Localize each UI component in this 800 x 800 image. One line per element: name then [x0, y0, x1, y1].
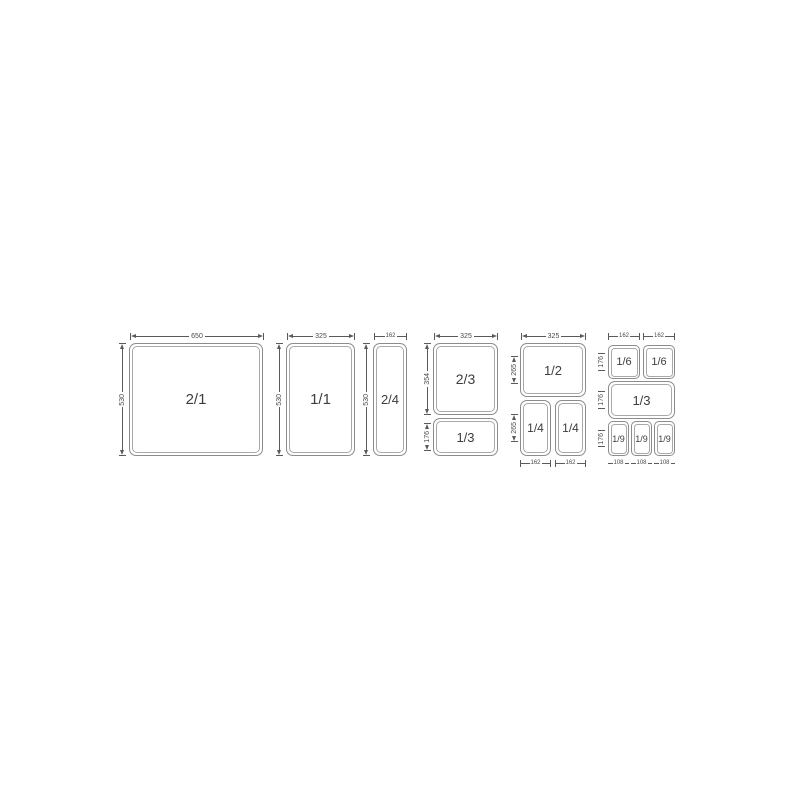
pan-1-4-left: 1/4	[520, 400, 551, 456]
dim-top-325-g4: 325	[434, 331, 498, 341]
pan-2-4: 2/4	[373, 343, 407, 456]
pan-1-3-wide: 1/3	[608, 381, 675, 419]
dim-top-162-g6-right: 162	[643, 331, 675, 341]
dim-left-530-g1: 530	[117, 343, 127, 456]
pan-label: 2/3	[456, 371, 475, 387]
pan-1-1: 1/1	[286, 343, 355, 456]
gastronorm-size-diagram: 650 530 2/1 325 530 1/1	[0, 0, 800, 800]
dim-tick	[354, 333, 355, 340]
pan-1-9-a: 1/9	[608, 421, 629, 456]
pan-1-2: 1/2	[520, 343, 586, 397]
pan-label: 1/4	[562, 421, 579, 435]
dim-tick	[598, 370, 605, 371]
dim-line	[644, 336, 653, 337]
dim-line	[521, 463, 530, 464]
dim-line	[122, 349, 123, 392]
dim-value: 650	[189, 333, 205, 340]
dim-tick	[585, 460, 586, 467]
dim-line	[427, 349, 428, 371]
dim-value: 530	[119, 392, 126, 408]
pan-label: 1/6	[651, 356, 666, 368]
dim-value: 108	[659, 460, 671, 466]
pan-1-6-right: 1/6	[643, 345, 675, 379]
pan-label: 1/9	[658, 434, 671, 444]
dim-line	[577, 463, 586, 464]
dim-value: 325	[313, 333, 329, 340]
dim-line	[293, 336, 313, 337]
dim-line	[527, 336, 546, 337]
dim-line	[279, 349, 280, 392]
dim-tick	[639, 333, 640, 340]
dim-left-176-g4: 176	[422, 418, 432, 456]
dim-value: 162	[565, 460, 577, 466]
dim-left-176-row3: 176	[596, 421, 606, 456]
dim-value: 530	[363, 392, 370, 408]
dim-line	[397, 336, 407, 337]
dim-top-650: 650	[130, 331, 264, 341]
dim-line	[375, 336, 385, 337]
dim-top-162-g6-left: 162	[608, 331, 640, 341]
dim-value: 176	[598, 431, 605, 447]
dim-line	[556, 463, 565, 464]
dim-value: 162	[530, 460, 542, 466]
dim-tick	[497, 333, 498, 340]
pan-label: 1/6	[616, 356, 631, 368]
dim-value: 176	[598, 392, 605, 408]
dim-line	[366, 349, 367, 392]
dim-value: 162	[653, 333, 665, 339]
dim-tick	[424, 450, 431, 451]
dim-left-265-top: 265	[509, 343, 519, 397]
dim-line	[671, 463, 676, 464]
pan-2-1: 2/1	[129, 343, 263, 456]
dim-value: 176	[424, 429, 431, 445]
dim-line	[136, 336, 189, 337]
dim-line	[279, 407, 280, 450]
dim-bottom-108-c: 108	[654, 458, 675, 468]
pan-1-3: 1/3	[433, 418, 498, 456]
pan-label: 2/4	[381, 392, 399, 407]
dim-top-325-g5: 325	[521, 331, 586, 341]
dim-left-354: 354	[422, 343, 432, 415]
dim-value: 354	[424, 371, 431, 387]
pan-1-9-b: 1/9	[631, 421, 652, 456]
dim-value: 176	[598, 354, 605, 370]
dim-line	[542, 463, 551, 464]
dim-line	[366, 407, 367, 450]
dim-line	[329, 336, 349, 337]
pan-label: 1/9	[635, 434, 648, 444]
pan-1-4-right: 1/4	[555, 400, 586, 456]
dim-value: 325	[546, 333, 562, 340]
dim-line	[122, 407, 123, 450]
dim-value: 108	[613, 460, 625, 466]
dim-tick	[363, 455, 370, 456]
dim-tick	[424, 414, 431, 415]
dim-tick	[276, 455, 283, 456]
dim-value: 265	[511, 362, 518, 378]
dim-left-530-g3: 530	[361, 343, 371, 456]
dim-value: 530	[276, 392, 283, 408]
dim-value: 162	[618, 333, 630, 339]
dim-value: 162	[385, 333, 397, 339]
pan-label: 1/4	[527, 421, 544, 435]
dim-bottom-108-a: 108	[608, 458, 629, 468]
dim-line	[205, 336, 258, 337]
dim-tick	[598, 408, 605, 409]
dim-line	[474, 336, 492, 337]
dim-tick	[511, 383, 518, 384]
dim-line	[609, 336, 618, 337]
pan-label: 1/9	[612, 434, 625, 444]
dim-bottom-162-right: 162	[555, 458, 586, 468]
dim-line	[440, 336, 458, 337]
dim-top-325-g2: 325	[287, 331, 355, 341]
dim-line	[625, 463, 630, 464]
dim-line	[665, 336, 674, 337]
pan-label: 2/1	[186, 391, 207, 408]
dim-bottom-108-b: 108	[631, 458, 652, 468]
dim-top-162-g3: 162	[374, 331, 407, 341]
dim-tick	[406, 333, 407, 340]
pan-label: 1/1	[310, 391, 331, 408]
dim-tick	[511, 441, 518, 442]
pan-1-6-left: 1/6	[608, 345, 640, 379]
dim-tick	[585, 333, 586, 340]
dim-left-530-g2: 530	[274, 343, 284, 456]
pan-2-3: 2/3	[433, 343, 498, 415]
dim-value: 108	[636, 460, 648, 466]
dim-line	[648, 463, 653, 464]
dim-left-176-row2: 176	[596, 381, 606, 419]
dim-tick	[119, 455, 126, 456]
dim-line	[561, 336, 580, 337]
dim-tick	[263, 333, 264, 340]
dim-value: 265	[511, 420, 518, 436]
dim-line	[630, 336, 639, 337]
dim-line	[427, 387, 428, 409]
dim-tick	[550, 460, 551, 467]
pan-label: 1/3	[456, 430, 474, 445]
dim-value: 325	[458, 333, 474, 340]
dim-tick	[674, 333, 675, 340]
dim-left-265-bottom: 265	[509, 400, 519, 456]
pan-label: 1/2	[544, 363, 562, 378]
pan-1-9-c: 1/9	[654, 421, 675, 456]
dim-left-176-row1: 176	[596, 345, 606, 379]
pan-label: 1/3	[632, 393, 650, 408]
dim-bottom-162-left: 162	[520, 458, 551, 468]
